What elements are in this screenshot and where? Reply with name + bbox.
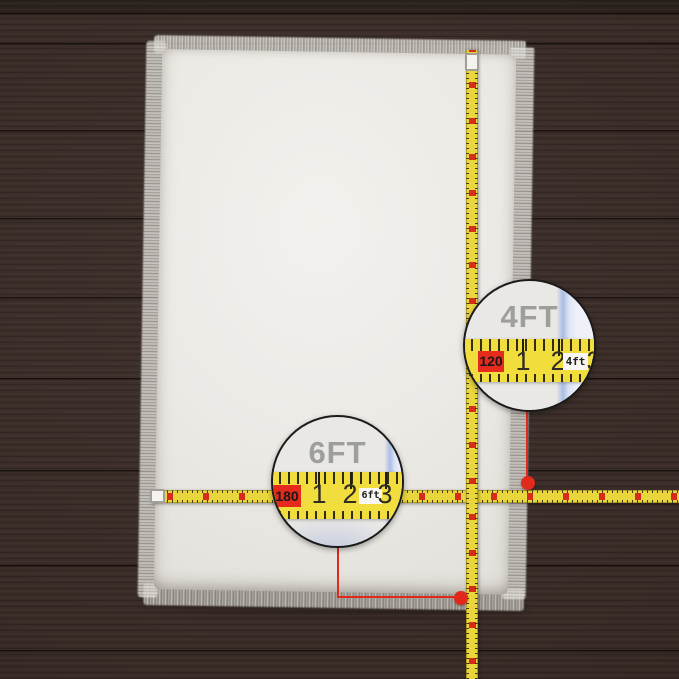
tape-zero-marker: 180 — [273, 485, 301, 507]
leader-line-4ft — [526, 405, 528, 483]
magnifier-label-4ft: 4FT — [465, 299, 594, 335]
tape-mark-3: 3 — [376, 479, 394, 510]
leader-line-6ft-horizontal — [337, 596, 463, 598]
horizontal-tape-measure — [152, 490, 679, 503]
leader-dot-4ft — [521, 476, 535, 490]
product-image-canvas: 4FT 120 1 2 4ft 3 6FT 180 1 2 6ft 3 — [0, 0, 679, 679]
tape-mark-1: 1 — [514, 346, 532, 377]
tape-mark-1: 1 — [310, 479, 328, 510]
tape-end-clip-horizontal — [150, 489, 165, 503]
magnifier-label-6ft: 6FT — [273, 435, 402, 471]
magnifier-circle-6ft: 6FT 180 1 2 6ft 3 — [271, 415, 404, 548]
leader-dot-6ft — [454, 591, 468, 605]
magnified-tape-4ft: 120 1 2 4ft 3 — [463, 339, 596, 382]
leader-line-6ft-vertical — [337, 544, 339, 598]
plank-seam — [0, 13, 679, 16]
tape-zero-marker: 120 — [478, 351, 504, 372]
magnifier-circle-4ft: 4FT 120 1 2 4ft 3 — [463, 279, 596, 412]
tape-mark-2: 2 — [341, 479, 359, 510]
tape-end-clip-vertical — [465, 53, 479, 71]
magnified-tape-6ft: 180 1 2 6ft 3 — [271, 472, 404, 519]
plank-seam — [0, 650, 679, 653]
